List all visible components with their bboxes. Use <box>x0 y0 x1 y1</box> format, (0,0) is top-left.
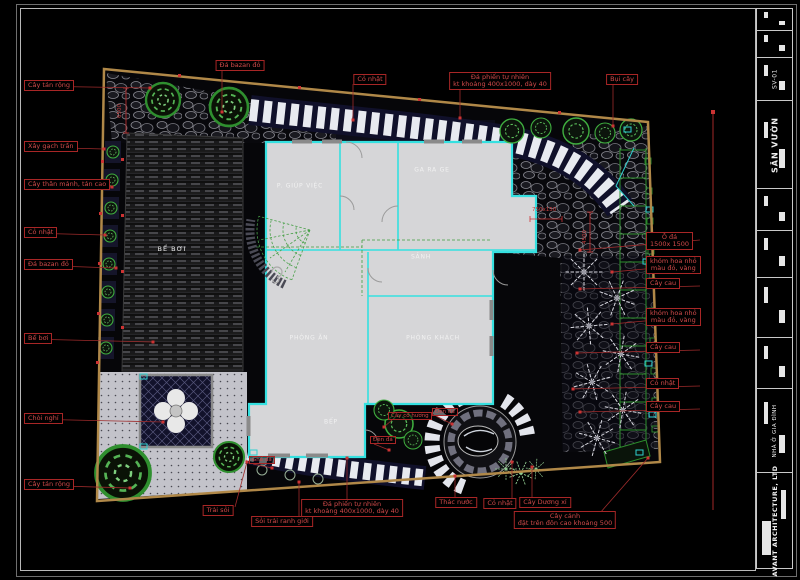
leader-target-marker <box>104 234 107 237</box>
annotation-label: Cây cảnhđặt trên đôn cao khoảng 500 <box>514 511 616 529</box>
leader-target-marker <box>611 271 614 274</box>
leader-target-marker <box>103 148 106 151</box>
leader-line <box>235 462 247 507</box>
room-label: BẾP <box>324 419 338 426</box>
titleblock-cell-sheet-number: SV-01 <box>757 58 792 101</box>
leader-line <box>600 458 648 513</box>
leader-target-marker <box>647 457 650 460</box>
leader-target-marker <box>346 457 349 460</box>
annotation-label: Cây cau <box>646 342 680 353</box>
leader-target-marker <box>572 388 575 391</box>
dimension-text: 6500 <box>117 104 123 118</box>
titleblock-cell <box>757 338 792 389</box>
room-label: GA RA GE <box>414 167 449 174</box>
titleblock-cell <box>757 278 792 338</box>
annotation-label: Đèn đá <box>370 436 396 444</box>
leader-target-marker <box>115 267 118 270</box>
annotation-label: khóm hoa nhỏmàu đỏ, vàng <box>646 308 701 326</box>
title-block: SV-01 SÂN VƯỜN NHÀ Ở GIA ĐÌNH AVANT ARCH… <box>756 8 793 569</box>
leader-line <box>253 464 272 468</box>
leader-line <box>580 409 700 412</box>
leader-target-marker <box>576 352 579 355</box>
leader-target-marker <box>129 487 132 490</box>
project-name: NHÀ Ở GIA ĐÌNH <box>772 404 778 457</box>
annotation-label: Chòi nghỉ <box>24 413 63 424</box>
annotation-label: Ghế đá <box>249 456 275 464</box>
titleblock-cell <box>757 231 792 278</box>
leader-target-marker <box>388 449 391 452</box>
annotation-label: Ô đá1500x 1500 <box>646 232 693 250</box>
leader-target-marker <box>579 411 582 414</box>
annotation-label: khóm hoa nhỏmàu đỏ, vàng <box>646 256 701 274</box>
leader-target-marker <box>451 423 454 426</box>
leader-line <box>577 350 700 353</box>
leader-target-marker <box>579 249 582 252</box>
annotation-label: Cây Dương xỉ <box>519 497 571 508</box>
leader-target-marker <box>611 323 614 326</box>
annotation-label: Đá bazan đỏ <box>24 259 73 270</box>
annotation-label: Cỏ nhật <box>483 498 516 509</box>
leader-line <box>374 444 389 450</box>
titleblock-cell-firm: AVANT ARCHITECTURE, LTD <box>757 473 792 568</box>
leader-target-marker <box>352 119 355 122</box>
garden-masterplan-canvas: SV-01 SÂN VƯỜN NHÀ Ở GIA ĐÌNH AVANT ARCH… <box>0 0 800 580</box>
annotation-label: Cây thân mảnh, tán cao <box>24 179 110 190</box>
room-label: PHÒNG KHÁCH <box>406 335 460 342</box>
annotation-label: Cây tán rộng <box>24 80 74 91</box>
leader-target-marker <box>511 461 514 464</box>
annotation-label: Trải sỏi <box>203 505 234 516</box>
dimension-text: 750x150 <box>532 207 556 213</box>
leader-target-marker <box>152 341 155 344</box>
leader-target-marker <box>221 111 224 114</box>
annotation-label: Cỏ nhật <box>646 378 679 389</box>
annotation-label: Bụi cây <box>606 74 638 85</box>
leader-line <box>436 416 452 424</box>
annotation-label: Cây cau <box>646 278 680 289</box>
room-label: SẢNH <box>411 254 431 261</box>
annotation-leader-lines <box>0 0 800 580</box>
leader-line <box>580 286 700 289</box>
leader-target-marker <box>459 117 462 120</box>
titleblock-cell-project: NHÀ Ở GIA ĐÌNH <box>757 389 792 473</box>
leader-target-marker <box>298 481 301 484</box>
titleblock-cell <box>757 31 792 58</box>
leader-target-marker <box>454 475 457 478</box>
leader-target-marker <box>531 466 534 469</box>
annotation-label: Đèn đá <box>432 408 458 416</box>
leader-target-marker <box>111 186 114 189</box>
room-label: P. GIÚP VIỆC <box>277 183 323 190</box>
annotation-label: Đá bazan đỏ <box>216 60 265 71</box>
site-feature-label: BỂ BƠI <box>158 245 187 253</box>
dimension-text: 4500 <box>582 230 588 244</box>
sheet-title: SÂN VƯỜN <box>770 117 779 173</box>
annotation-label: Xây gạch trần <box>24 141 78 152</box>
annotation-label: Đá phiến tự nhiênkt khoảng 400x1000, dày… <box>301 499 403 517</box>
annotation-label: Bể bơi <box>24 333 52 344</box>
leader-target-marker <box>162 421 165 424</box>
annotation-label: Cây cau <box>646 401 680 412</box>
room-label: PHÒNG ĂN <box>290 335 329 342</box>
titleblock-cell-sheet-title: SÂN VƯỜN <box>757 101 792 189</box>
annotation-label: Cỏ nhật <box>24 227 57 238</box>
annotation-label: Cây tán rộng <box>24 479 74 490</box>
annotation-label: Thác nước <box>435 497 477 508</box>
sheet-number: SV-01 <box>771 69 778 89</box>
firm-name: AVANT ARCHITECTURE, LTD <box>771 465 779 576</box>
leader-target-marker <box>149 87 152 90</box>
annotation-label: Cỏ nhật <box>353 74 386 85</box>
leader-target-marker <box>271 467 274 470</box>
leader-line <box>573 386 700 389</box>
leader-target-marker <box>383 426 386 429</box>
leader-target-marker <box>612 125 615 128</box>
annotation-label: Đá phiến tự nhiênkt khoảng 400x1000, dày… <box>449 72 551 90</box>
leader-target-marker <box>579 288 582 291</box>
titleblock-cell <box>757 189 792 231</box>
titleblock-cell <box>757 9 792 31</box>
annotation-label: Sỏi trải ranh giới <box>251 516 313 527</box>
annotation-label: Cây cỏ hương <box>388 412 432 420</box>
